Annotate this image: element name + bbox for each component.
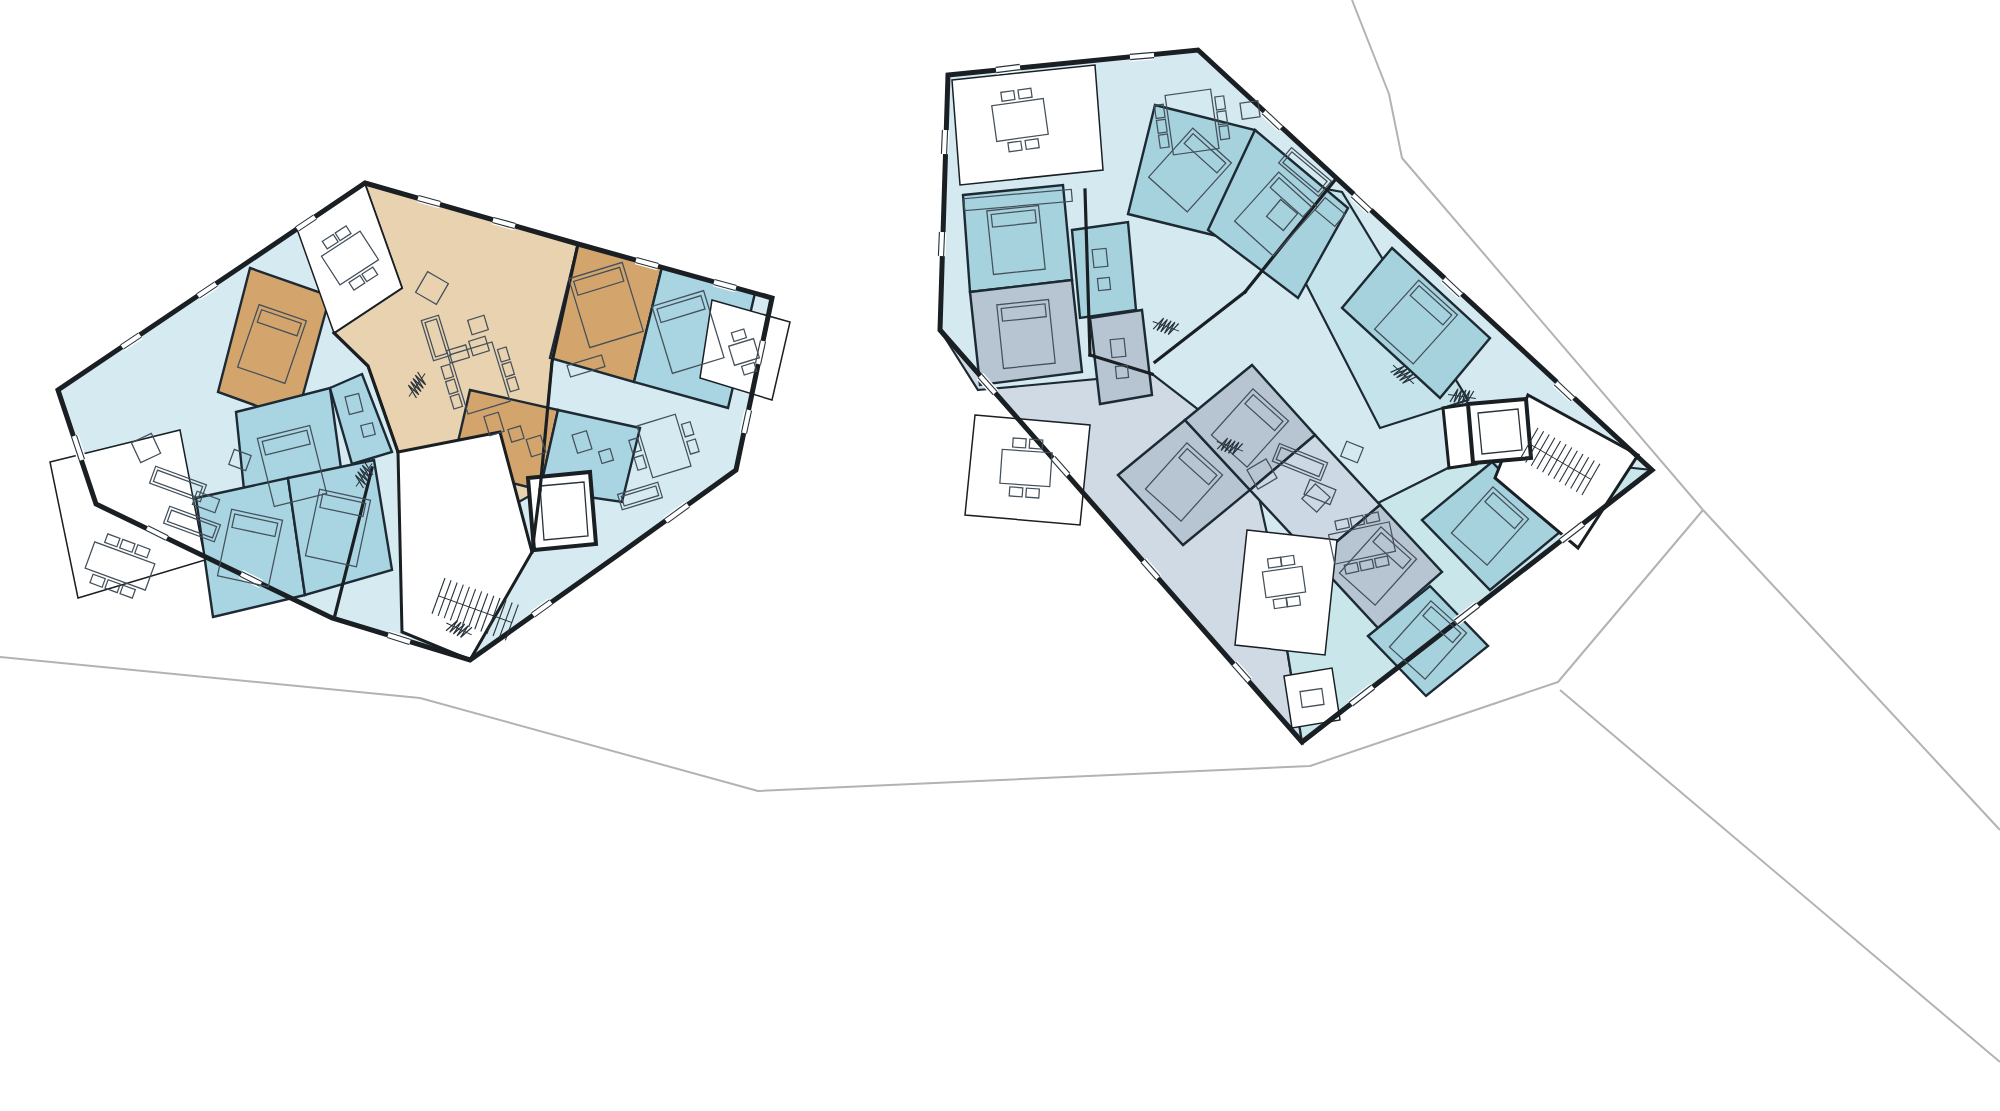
window-opening (714, 282, 736, 288)
bathroom-teal (1072, 222, 1136, 318)
window-opening (758, 341, 763, 364)
window-opening (944, 130, 945, 154)
buildings-layer (50, 50, 1652, 742)
bedroom-gray (970, 280, 1082, 385)
floor-plan-canvas (0, 0, 2000, 1111)
building-east-floor-plan (938, 50, 1652, 742)
bedroom-teal (963, 185, 1072, 292)
site-boundary-east (1703, 510, 2000, 830)
window-opening (636, 260, 658, 266)
window-opening (493, 220, 515, 226)
site-boundary-south-east (1560, 690, 2000, 1062)
window-opening (418, 198, 440, 204)
window-opening (941, 232, 942, 256)
window-opening (744, 410, 749, 433)
balcony-south (1235, 530, 1337, 655)
building-west-floor-plan (50, 183, 790, 660)
chair (120, 585, 135, 598)
terrace-northwest (952, 65, 1103, 185)
window-opening (1130, 55, 1154, 57)
bedroom-teal-south-2 (288, 460, 392, 595)
elevator-shaft (1468, 399, 1531, 463)
floor-plan-page (0, 0, 2000, 1111)
